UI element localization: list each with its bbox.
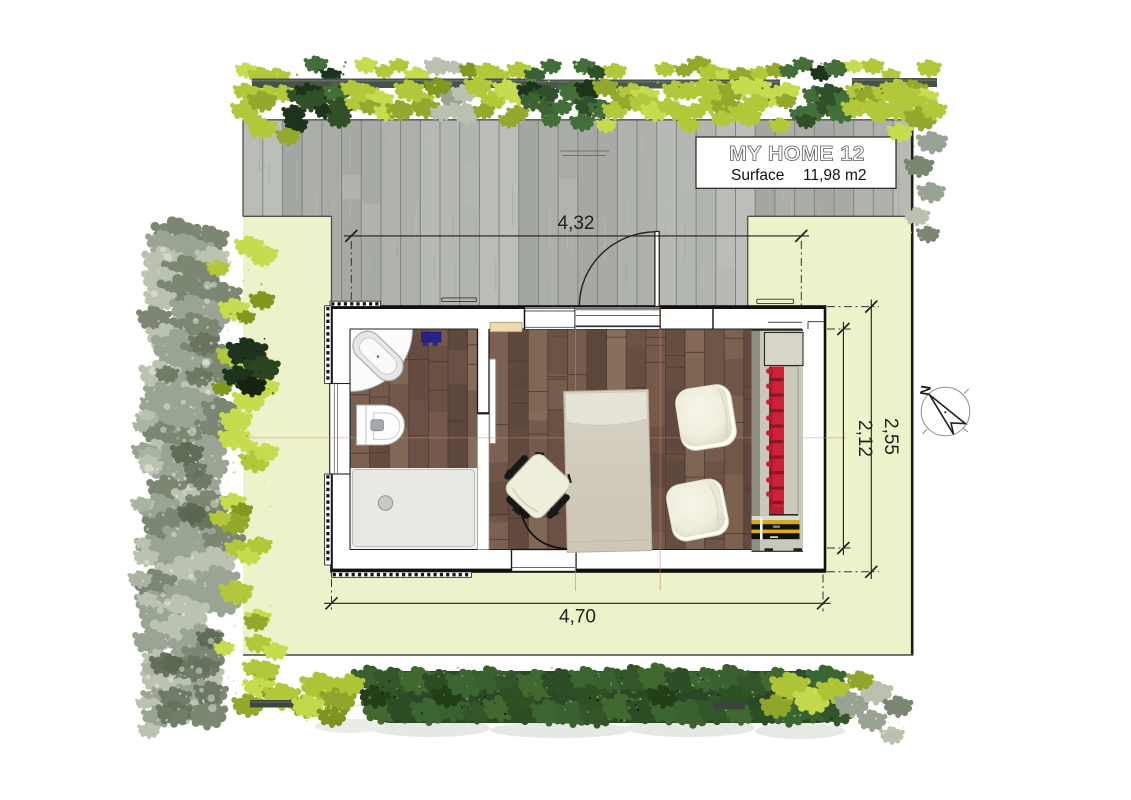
svg-text:MY HOME 12: MY HOME 12 bbox=[729, 142, 866, 166]
svg-text:11,98 m2: 11,98 m2 bbox=[803, 167, 866, 184]
svg-text:2,12: 2,12 bbox=[854, 420, 875, 457]
svg-text:2,55: 2,55 bbox=[880, 418, 901, 455]
svg-text:4,32: 4,32 bbox=[558, 213, 595, 234]
svg-text:Surface: Surface bbox=[731, 167, 784, 184]
svg-text:4,70: 4,70 bbox=[559, 607, 596, 628]
